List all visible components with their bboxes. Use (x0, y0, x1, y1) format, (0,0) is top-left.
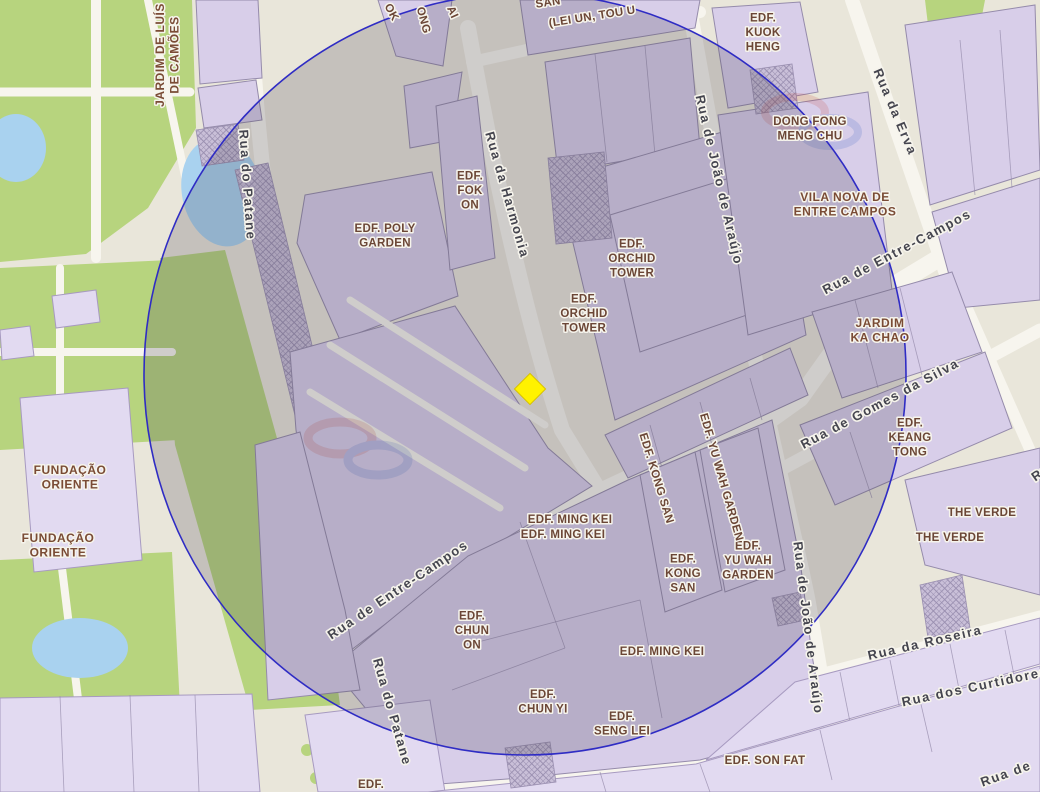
building-label: THE VERDE (916, 532, 985, 544)
building-label: EDF. MING KEI (521, 529, 605, 541)
building-label: EDF.KUOKHENG (745, 13, 780, 54)
building-label: THE VERDE (948, 507, 1017, 519)
building-label: EDF. MING KEI (620, 646, 704, 658)
building-label: EDF. (358, 779, 384, 791)
area-label: FUNDAÇÃOORIENTE (22, 530, 95, 560)
building-label: EDF. SON FAT (725, 755, 806, 767)
building-label: EDF.KONGSAN (665, 554, 701, 595)
area-label: JARDIM DE LUÍSDE CAMÕES (152, 3, 182, 107)
map-canvas[interactable]: JARDIM DE LUÍSDE CAMÕESFUNDAÇÃOORIENTEFU… (0, 0, 1040, 792)
area-label: VILA NOVA DEENTRE CAMPOS (794, 190, 897, 219)
area-label: JARDIMKA CHAO (850, 316, 909, 345)
buffer-circle-overlay (144, 0, 906, 755)
map-viewport[interactable]: JARDIM DE LUÍSDE CAMÕESFUNDAÇÃOORIENTEFU… (0, 0, 1040, 792)
area-label: FUNDAÇÃOORIENTE (34, 462, 107, 492)
building-label: EDF. MING KEI (528, 514, 612, 526)
